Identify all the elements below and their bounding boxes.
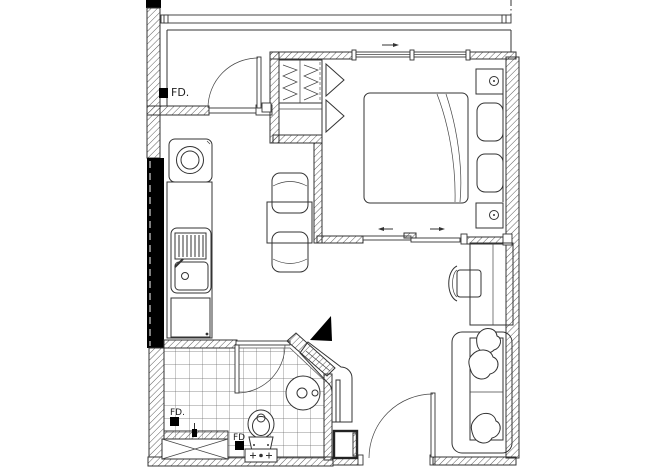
tv-console-shelf — [336, 380, 340, 422]
side-cabinet-hatch-edge — [353, 433, 357, 456]
corridor-ledge-left-cap — [164, 15, 168, 23]
nightstand-bottom-lamp-dot — [493, 214, 495, 216]
entry-door-swing-arc — [208, 58, 258, 108]
window-arrow-head — [393, 43, 399, 47]
bathroom-top-wall — [164, 340, 237, 348]
corridor-ledge-right-cap — [502, 15, 506, 23]
bed-outline — [364, 93, 468, 203]
dining-chair-bottom-back — [273, 259, 307, 264]
desk-chair — [449, 266, 481, 301]
balcony-door — [369, 393, 435, 458]
nightstand-top-lamp-dot — [493, 80, 495, 82]
cooktop — [169, 139, 212, 182]
floor-plan: FD. FD — [0, 0, 663, 468]
sliding-door-overlap — [404, 233, 416, 238]
dining-chair-bottom — [272, 232, 308, 272]
wardrobe — [279, 60, 344, 135]
bed-pillow-1 — [477, 103, 503, 141]
dining-chair-top-back — [273, 182, 307, 187]
sofa-pillow-3 — [471, 413, 500, 443]
kitchen-cabinet-knob — [206, 333, 209, 336]
slide-arrow-right-head — [439, 227, 445, 231]
entry-wall — [147, 106, 209, 115]
bathroom-door-threshold — [236, 341, 290, 345]
bed-pillow-2 — [477, 154, 503, 192]
kitchen-sink — [171, 228, 211, 293]
wardrobe-folding-door-lower — [326, 100, 344, 132]
toilet-cistern-button — [259, 454, 263, 458]
floor-drain-entry-label: FD. — [171, 86, 189, 99]
closet-left-wall — [270, 52, 279, 143]
closet-top-wall — [270, 52, 352, 59]
closet-bottom-wall — [273, 135, 322, 143]
floor-drain-bathroom-label: FD. — [170, 408, 185, 418]
dining-table — [267, 202, 312, 243]
bedroom-bottom-wall-left — [317, 236, 363, 243]
floor-plan-drawing: FD. FD — [0, 0, 663, 468]
entry-door — [208, 57, 261, 108]
balcony-door-left-cap — [358, 455, 363, 465]
floor-drain-entry: FD. — [159, 86, 189, 99]
kitchen-cabinet — [171, 298, 210, 337]
sink-drainboard-ribs — [179, 235, 203, 257]
corridor-ledge — [161, 15, 511, 23]
wardrobe-drawer — [279, 103, 322, 135]
bed-blanket-fold-2 — [446, 94, 461, 202]
left-wall-upper — [147, 8, 160, 158]
bottom-wall-living — [433, 457, 516, 465]
wardrobe-folding-door-upper — [326, 64, 344, 96]
bedroom — [364, 69, 503, 228]
entry-door-leaf — [257, 57, 261, 108]
dining-area — [267, 173, 312, 272]
sofa-pillow-2 — [469, 350, 498, 379]
nightstand-top — [476, 69, 503, 94]
balcony-door-leaf — [431, 393, 435, 457]
bedroom-left-wall — [314, 143, 322, 243]
bed-blanket-fold-1 — [437, 94, 455, 202]
sliding-door-right-cap — [461, 234, 467, 244]
desk-chair-back-inner — [453, 270, 458, 297]
column-top-left — [146, 0, 161, 8]
toilet-bolt-left — [253, 444, 255, 446]
entry-threshold — [209, 108, 257, 113]
basin-bowl — [286, 376, 320, 410]
toilet-bolt-right — [267, 444, 269, 446]
window-left-cap — [352, 50, 356, 60]
closet-wall-stub — [262, 103, 271, 112]
kitchen — [167, 139, 212, 338]
window-mullion — [410, 50, 414, 60]
wardrobe-hangers-left — [283, 65, 297, 100]
corner-column-black — [310, 316, 332, 341]
desk-chair-seat — [457, 270, 481, 297]
washbasin — [286, 376, 320, 410]
floor-drain-bathroom-square — [170, 417, 179, 426]
sliding-door-panel-2 — [411, 238, 460, 242]
stop-valve-body — [192, 429, 197, 437]
slide-arrow-left-head — [378, 227, 384, 231]
floor-drain-entry-square — [159, 88, 168, 98]
wardrobe-body — [279, 60, 322, 103]
cooktop-body — [169, 139, 212, 182]
floor-drain-toilet-label: FD — [233, 433, 245, 443]
window-right-cap — [466, 50, 470, 60]
dining-chair-top — [272, 173, 308, 213]
bathroom-door-leaf — [235, 345, 239, 393]
wardrobe-hangers-right — [304, 65, 318, 100]
sofa — [452, 329, 512, 453]
balcony-door-swing-arc — [369, 394, 433, 458]
nightstand-bottom — [476, 203, 503, 228]
